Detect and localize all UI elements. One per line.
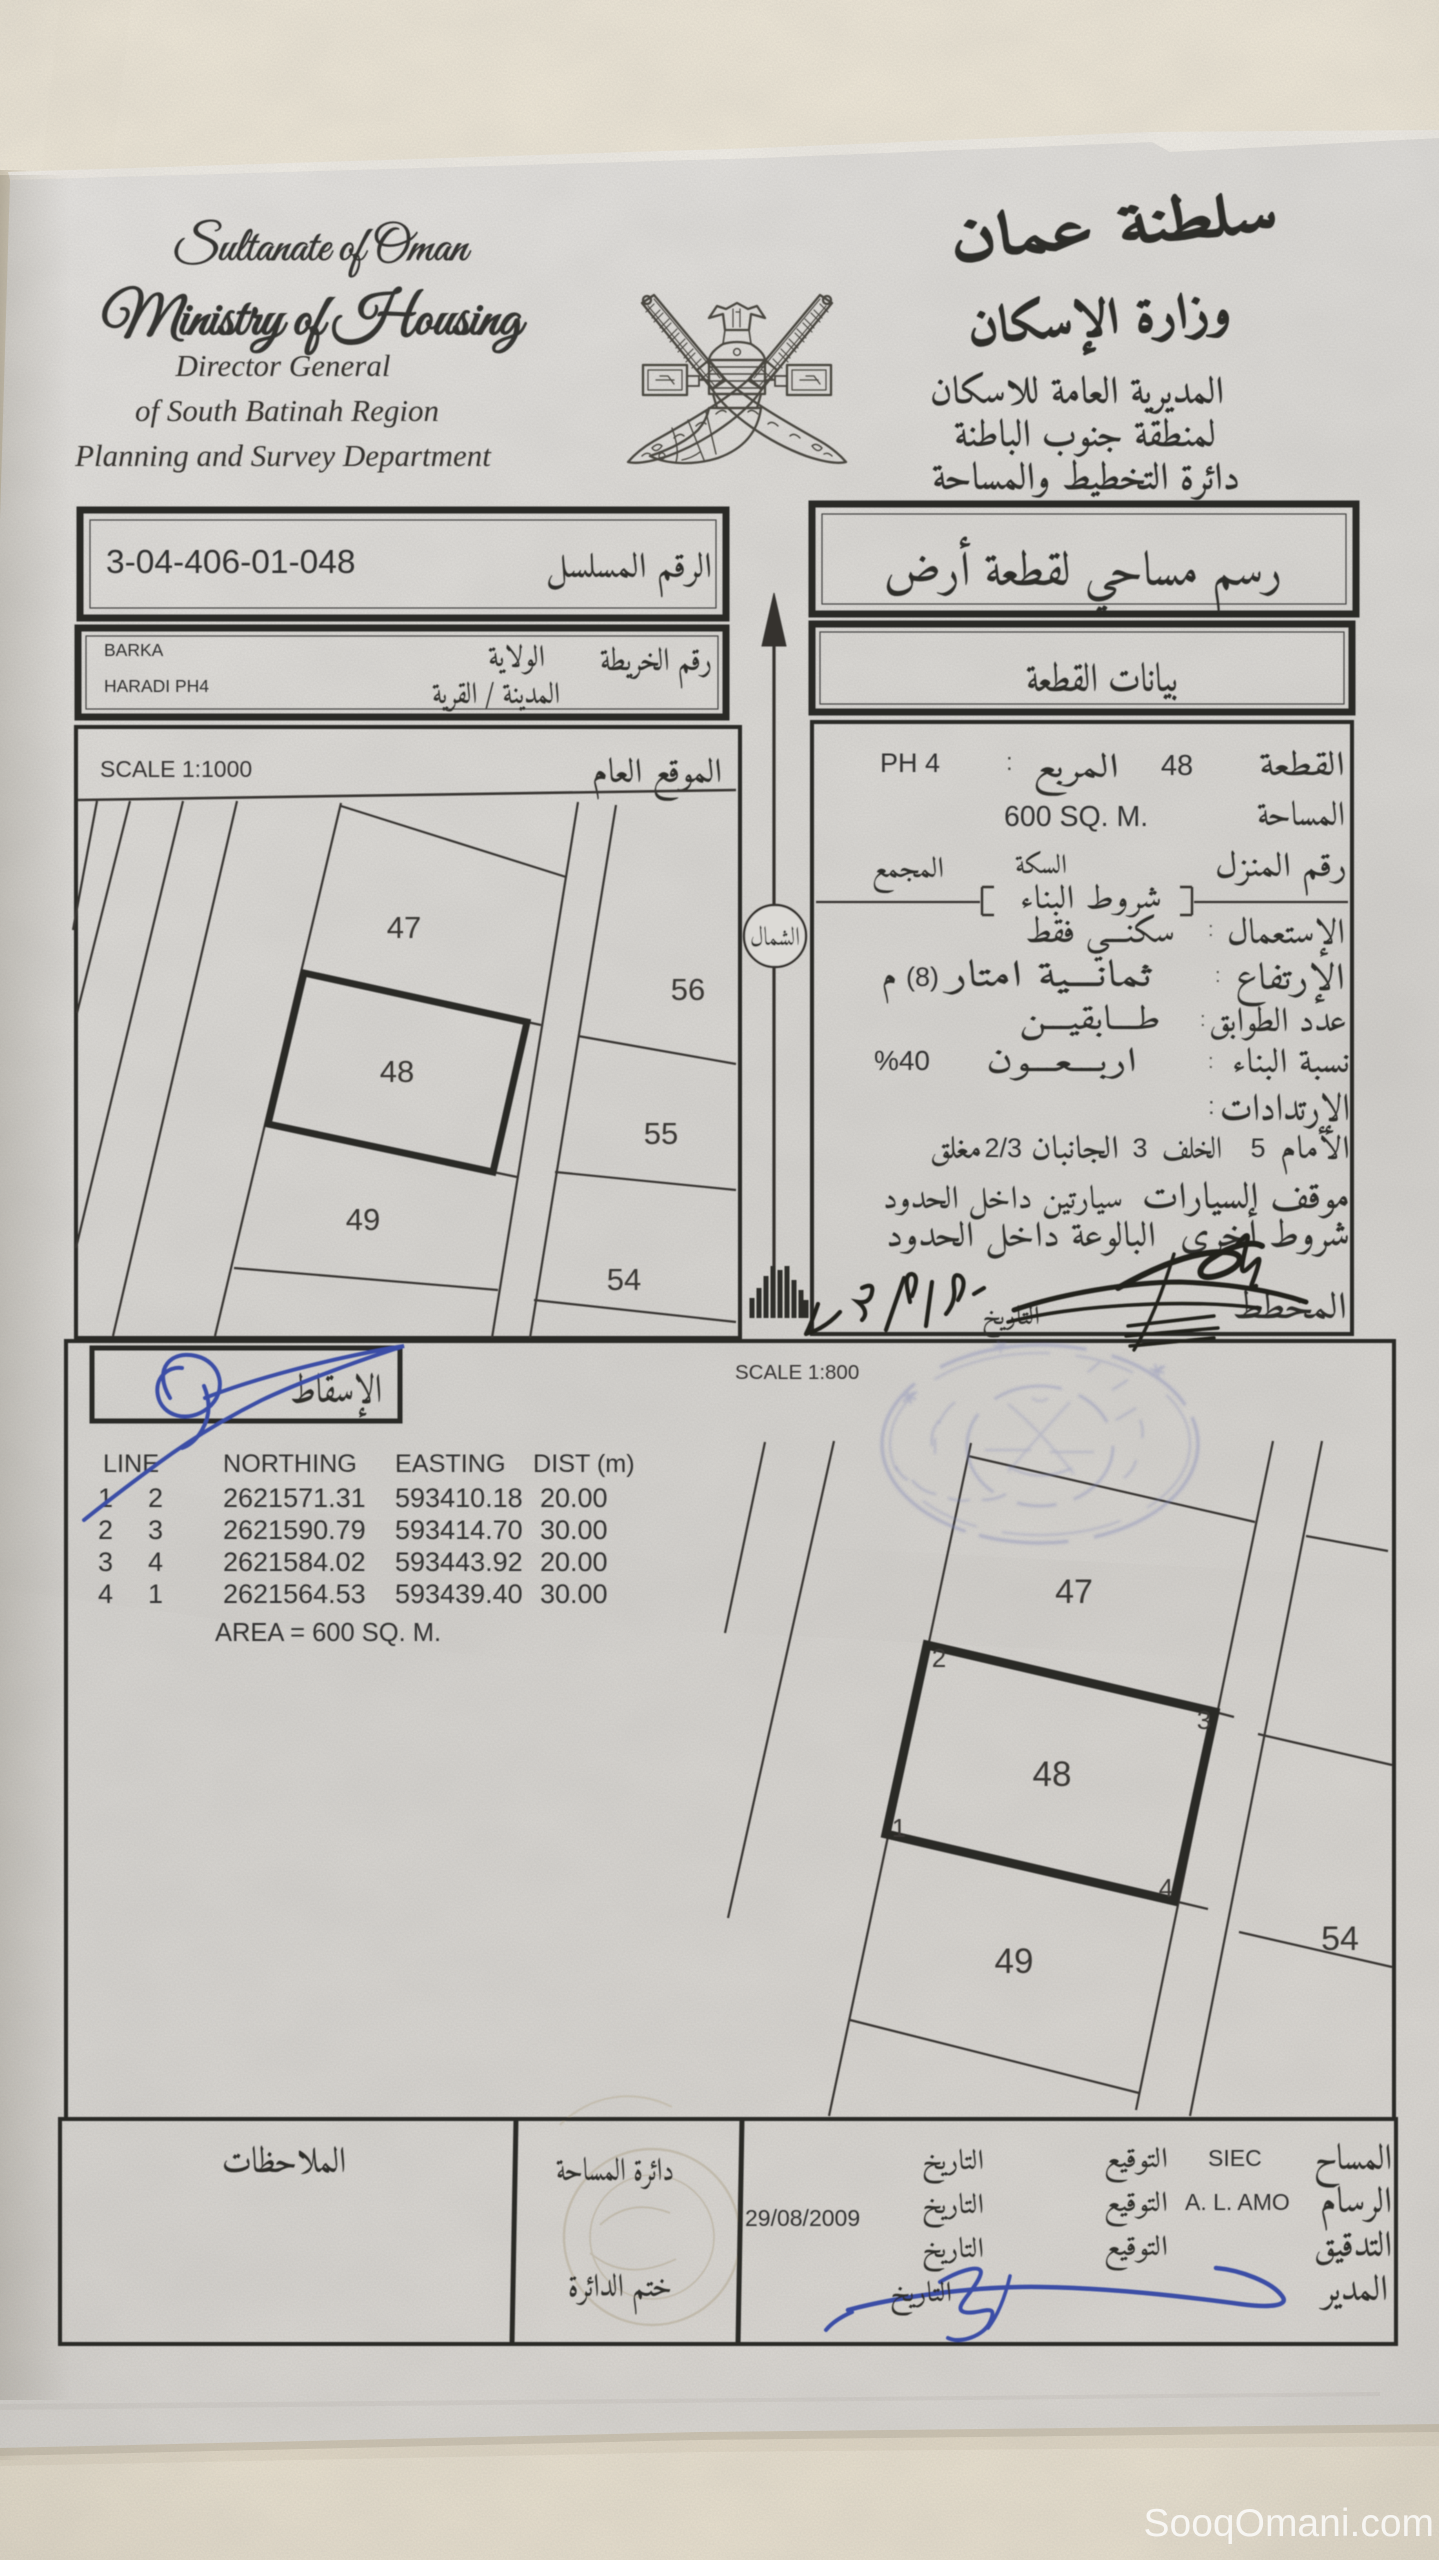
svg-text:Planning and Survey Department: Planning and Survey Department <box>74 438 492 473</box>
svg-text:593439.40: 593439.40 <box>395 1579 523 1609</box>
svg-text::: : <box>1208 1093 1215 1120</box>
svg-text:2621564.53: 2621564.53 <box>223 1579 366 1609</box>
svg-text:48: 48 <box>380 1054 414 1089</box>
svg-text:49: 49 <box>995 1942 1034 1981</box>
svg-text:48: 48 <box>1033 1755 1072 1794</box>
svg-text:49: 49 <box>346 1202 380 1237</box>
svg-text:BARKA: BARKA <box>104 640 164 660</box>
svg-text:3: 3 <box>148 1515 163 1545</box>
svg-text:A. L. AMO: A. L. AMO <box>1185 2189 1290 2215</box>
svg-text:3-04-406-01-048: 3-04-406-01-048 <box>106 544 356 581</box>
svg-text:SCALE 1:800: SCALE 1:800 <box>735 1361 859 1384</box>
svg-text::: : <box>1208 919 1214 941</box>
svg-text:54: 54 <box>607 1262 641 1297</box>
svg-text:(8): (8) <box>906 962 939 992</box>
svg-text:3: 3 <box>1197 1705 1211 1735</box>
svg-text:4: 4 <box>1159 1873 1173 1903</box>
svg-text:1: 1 <box>892 1813 906 1843</box>
svg-text::: : <box>1006 749 1013 776</box>
svg-text:20.00: 20.00 <box>540 1483 608 1513</box>
svg-text:48: 48 <box>1161 750 1193 782</box>
svg-text:3: 3 <box>98 1547 113 1577</box>
svg-text:593414.70: 593414.70 <box>395 1515 523 1545</box>
svg-text:%40: %40 <box>874 1045 930 1076</box>
svg-text:2621571.31: 2621571.31 <box>223 1483 366 1513</box>
svg-text::: : <box>1215 965 1221 987</box>
svg-text:600 SQ. M.: 600 SQ. M. <box>1004 801 1148 833</box>
svg-text:55: 55 <box>644 1116 678 1151</box>
svg-text::: : <box>1208 1051 1214 1073</box>
svg-text:20.00: 20.00 <box>540 1547 608 1577</box>
svg-text:30.00: 30.00 <box>540 1515 608 1545</box>
svg-text:SooqOmani.com: SooqOmani.com <box>1144 2502 1434 2545</box>
svg-text:2621584.02: 2621584.02 <box>223 1547 366 1577</box>
svg-text:SIEC: SIEC <box>1208 2145 1262 2171</box>
svg-text:AREA = 600 SQ. M.: AREA = 600 SQ. M. <box>215 1619 441 1647</box>
svg-text:4: 4 <box>98 1579 113 1609</box>
svg-text:PH 4: PH 4 <box>880 748 940 778</box>
svg-text::: : <box>1200 1009 1206 1031</box>
svg-text:EASTING: EASTING <box>395 1450 506 1478</box>
svg-text:1: 1 <box>148 1579 163 1609</box>
svg-text:2621590.79: 2621590.79 <box>223 1515 366 1545</box>
svg-text:Director General: Director General <box>175 348 391 383</box>
svg-text:593443.92: 593443.92 <box>395 1547 523 1577</box>
svg-text:54: 54 <box>1321 1920 1359 1958</box>
svg-text:NORTHING: NORTHING <box>223 1450 357 1478</box>
svg-text:47: 47 <box>1055 1573 1093 1611</box>
svg-text:593410.18: 593410.18 <box>395 1483 523 1513</box>
svg-text:2: 2 <box>98 1515 113 1545</box>
svg-text:29/08/2009: 29/08/2009 <box>745 2205 860 2231</box>
svg-text:56: 56 <box>671 972 705 1007</box>
svg-text:2/3: 2/3 <box>984 1133 1022 1163</box>
svg-text:of South Batinah Region: of South Batinah Region <box>135 393 439 428</box>
svg-text:4: 4 <box>148 1547 163 1577</box>
svg-text:DIST (m): DIST (m) <box>533 1450 635 1478</box>
svg-text:SCALE 1:1000: SCALE 1:1000 <box>100 756 252 782</box>
svg-text:5: 5 <box>1250 1133 1265 1163</box>
svg-text:3: 3 <box>1132 1133 1147 1163</box>
svg-text:LINE: LINE <box>103 1450 159 1478</box>
svg-text:47: 47 <box>387 910 421 945</box>
svg-text:2: 2 <box>148 1483 163 1513</box>
svg-text:30.00: 30.00 <box>540 1579 608 1609</box>
svg-text:HARADI PH4: HARADI PH4 <box>104 676 209 696</box>
svg-text:2: 2 <box>932 1643 946 1673</box>
